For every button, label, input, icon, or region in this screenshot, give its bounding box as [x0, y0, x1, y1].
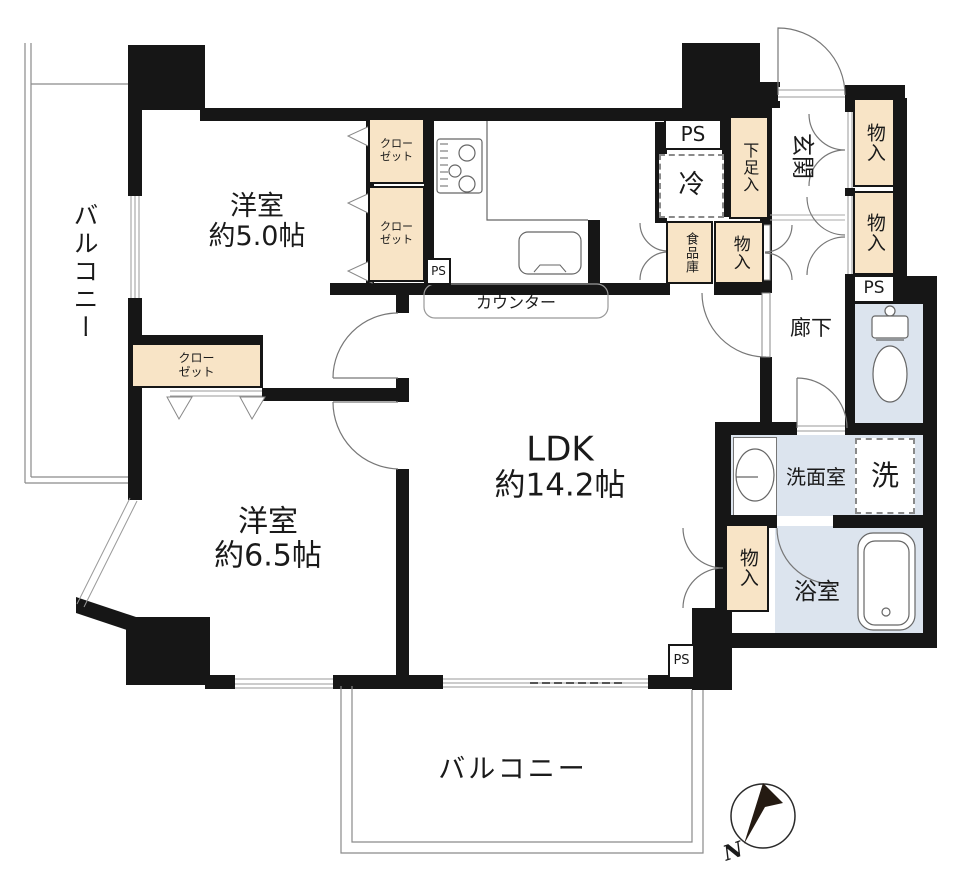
shoe-cabinet-label: 下足入: [740, 142, 758, 193]
sink-icon: [519, 232, 581, 274]
ldk-hall-door-arc: [702, 293, 766, 357]
hallway-label: 廊下: [790, 317, 832, 341]
ldk-label: LDK 約14.2帖: [494, 431, 625, 504]
storage-3-box: 物入: [853, 191, 895, 275]
bedroom2-size: 約6.5帖: [214, 539, 322, 573]
pantry-label: 食品庫: [682, 232, 697, 274]
counter-label: カウンター: [476, 294, 556, 312]
storage-4-box: 物入: [725, 524, 769, 612]
storage3-door-arcs: [807, 197, 845, 275]
ldk-name: LDK: [494, 431, 625, 469]
closet-1-label: クローゼット: [379, 138, 414, 163]
closet-2-label: クローゼット: [379, 221, 414, 246]
storage-3-label: 物入: [863, 213, 885, 253]
storage-1-box: 物入: [714, 221, 764, 284]
bedroom1-label: 洋室 約5.0帖: [209, 192, 306, 252]
closet-3-label: クローゼット: [178, 352, 216, 380]
refrigerator-box: 冷: [659, 154, 724, 218]
bedroom1-name: 洋室: [209, 192, 306, 222]
washroom-label: 洗面室: [786, 466, 846, 488]
storage-1-label: 物入: [729, 235, 749, 271]
floor-plan: クローゼット クローゼット クローゼット 下足入 食品庫 物入 物入 物入 物入…: [0, 0, 954, 885]
closet-3-box: クローゼット: [131, 343, 262, 388]
stove-icon: [437, 139, 482, 193]
ps-1-label: PS: [431, 265, 446, 279]
bathtub-icon: [858, 533, 915, 630]
washer-label: 洗: [871, 460, 899, 492]
entrance-label: 玄関: [788, 133, 814, 179]
closet-1-box: クローゼット: [368, 118, 425, 184]
storage-2-label: 物入: [863, 123, 885, 163]
washer-box: 洗: [855, 438, 915, 514]
pantry-box: 食品庫: [666, 221, 713, 284]
bathroom-label: 浴室: [794, 580, 840, 606]
ps-2-box: PS: [664, 119, 722, 150]
compass-icon: [731, 783, 795, 848]
ps-2-label: PS: [681, 123, 706, 146]
bedroom2-name: 洋室: [214, 505, 322, 539]
bedroom2-door-arc: [333, 402, 398, 469]
bathroom-door-arc: [777, 528, 833, 584]
ps-3-box: PS: [853, 275, 895, 303]
toilet-icon: [872, 306, 908, 402]
bedroom1-size: 約5.0帖: [209, 222, 306, 252]
washroom-door-arc: [797, 378, 847, 428]
washbasin-icon: [736, 449, 774, 501]
ldk-size: 約14.2帖: [494, 469, 625, 504]
storage-4-label: 物入: [736, 548, 758, 588]
bedroom1-door-arc: [333, 313, 398, 378]
entrance-door-arc: [778, 28, 845, 95]
balcony-bottom-label: バルコニー: [438, 755, 587, 785]
counter-edge: [487, 121, 588, 220]
bedroom2-label: 洋室 約6.5帖: [214, 505, 322, 572]
ps-1-box: PS: [426, 258, 451, 285]
closet-2-box: クローゼット: [368, 186, 425, 282]
shoe-cabinet-box: 下足入: [729, 116, 769, 219]
ps-4-label: PS: [673, 654, 689, 669]
refrigerator-label: 冷: [678, 171, 704, 201]
storage-2-box: 物入: [853, 98, 895, 187]
balcony-left-label: バルコニー: [70, 202, 98, 342]
ps-3-label: PS: [863, 279, 884, 299]
ps-4-box: PS: [668, 644, 695, 679]
pantry-door-arcs: [640, 223, 668, 280]
